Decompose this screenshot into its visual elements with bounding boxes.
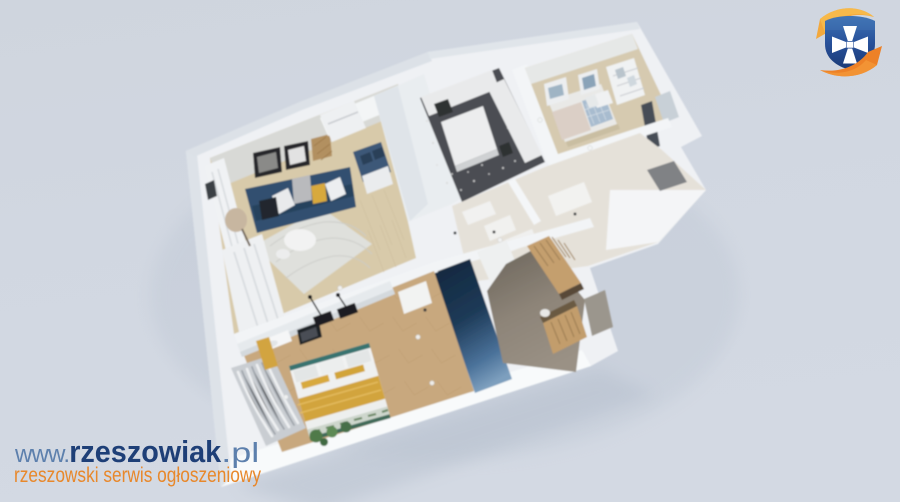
svg-text:rzeszowski serwis ogłoszeniowy: rzeszowski serwis ogłoszeniowy — [14, 464, 261, 487]
